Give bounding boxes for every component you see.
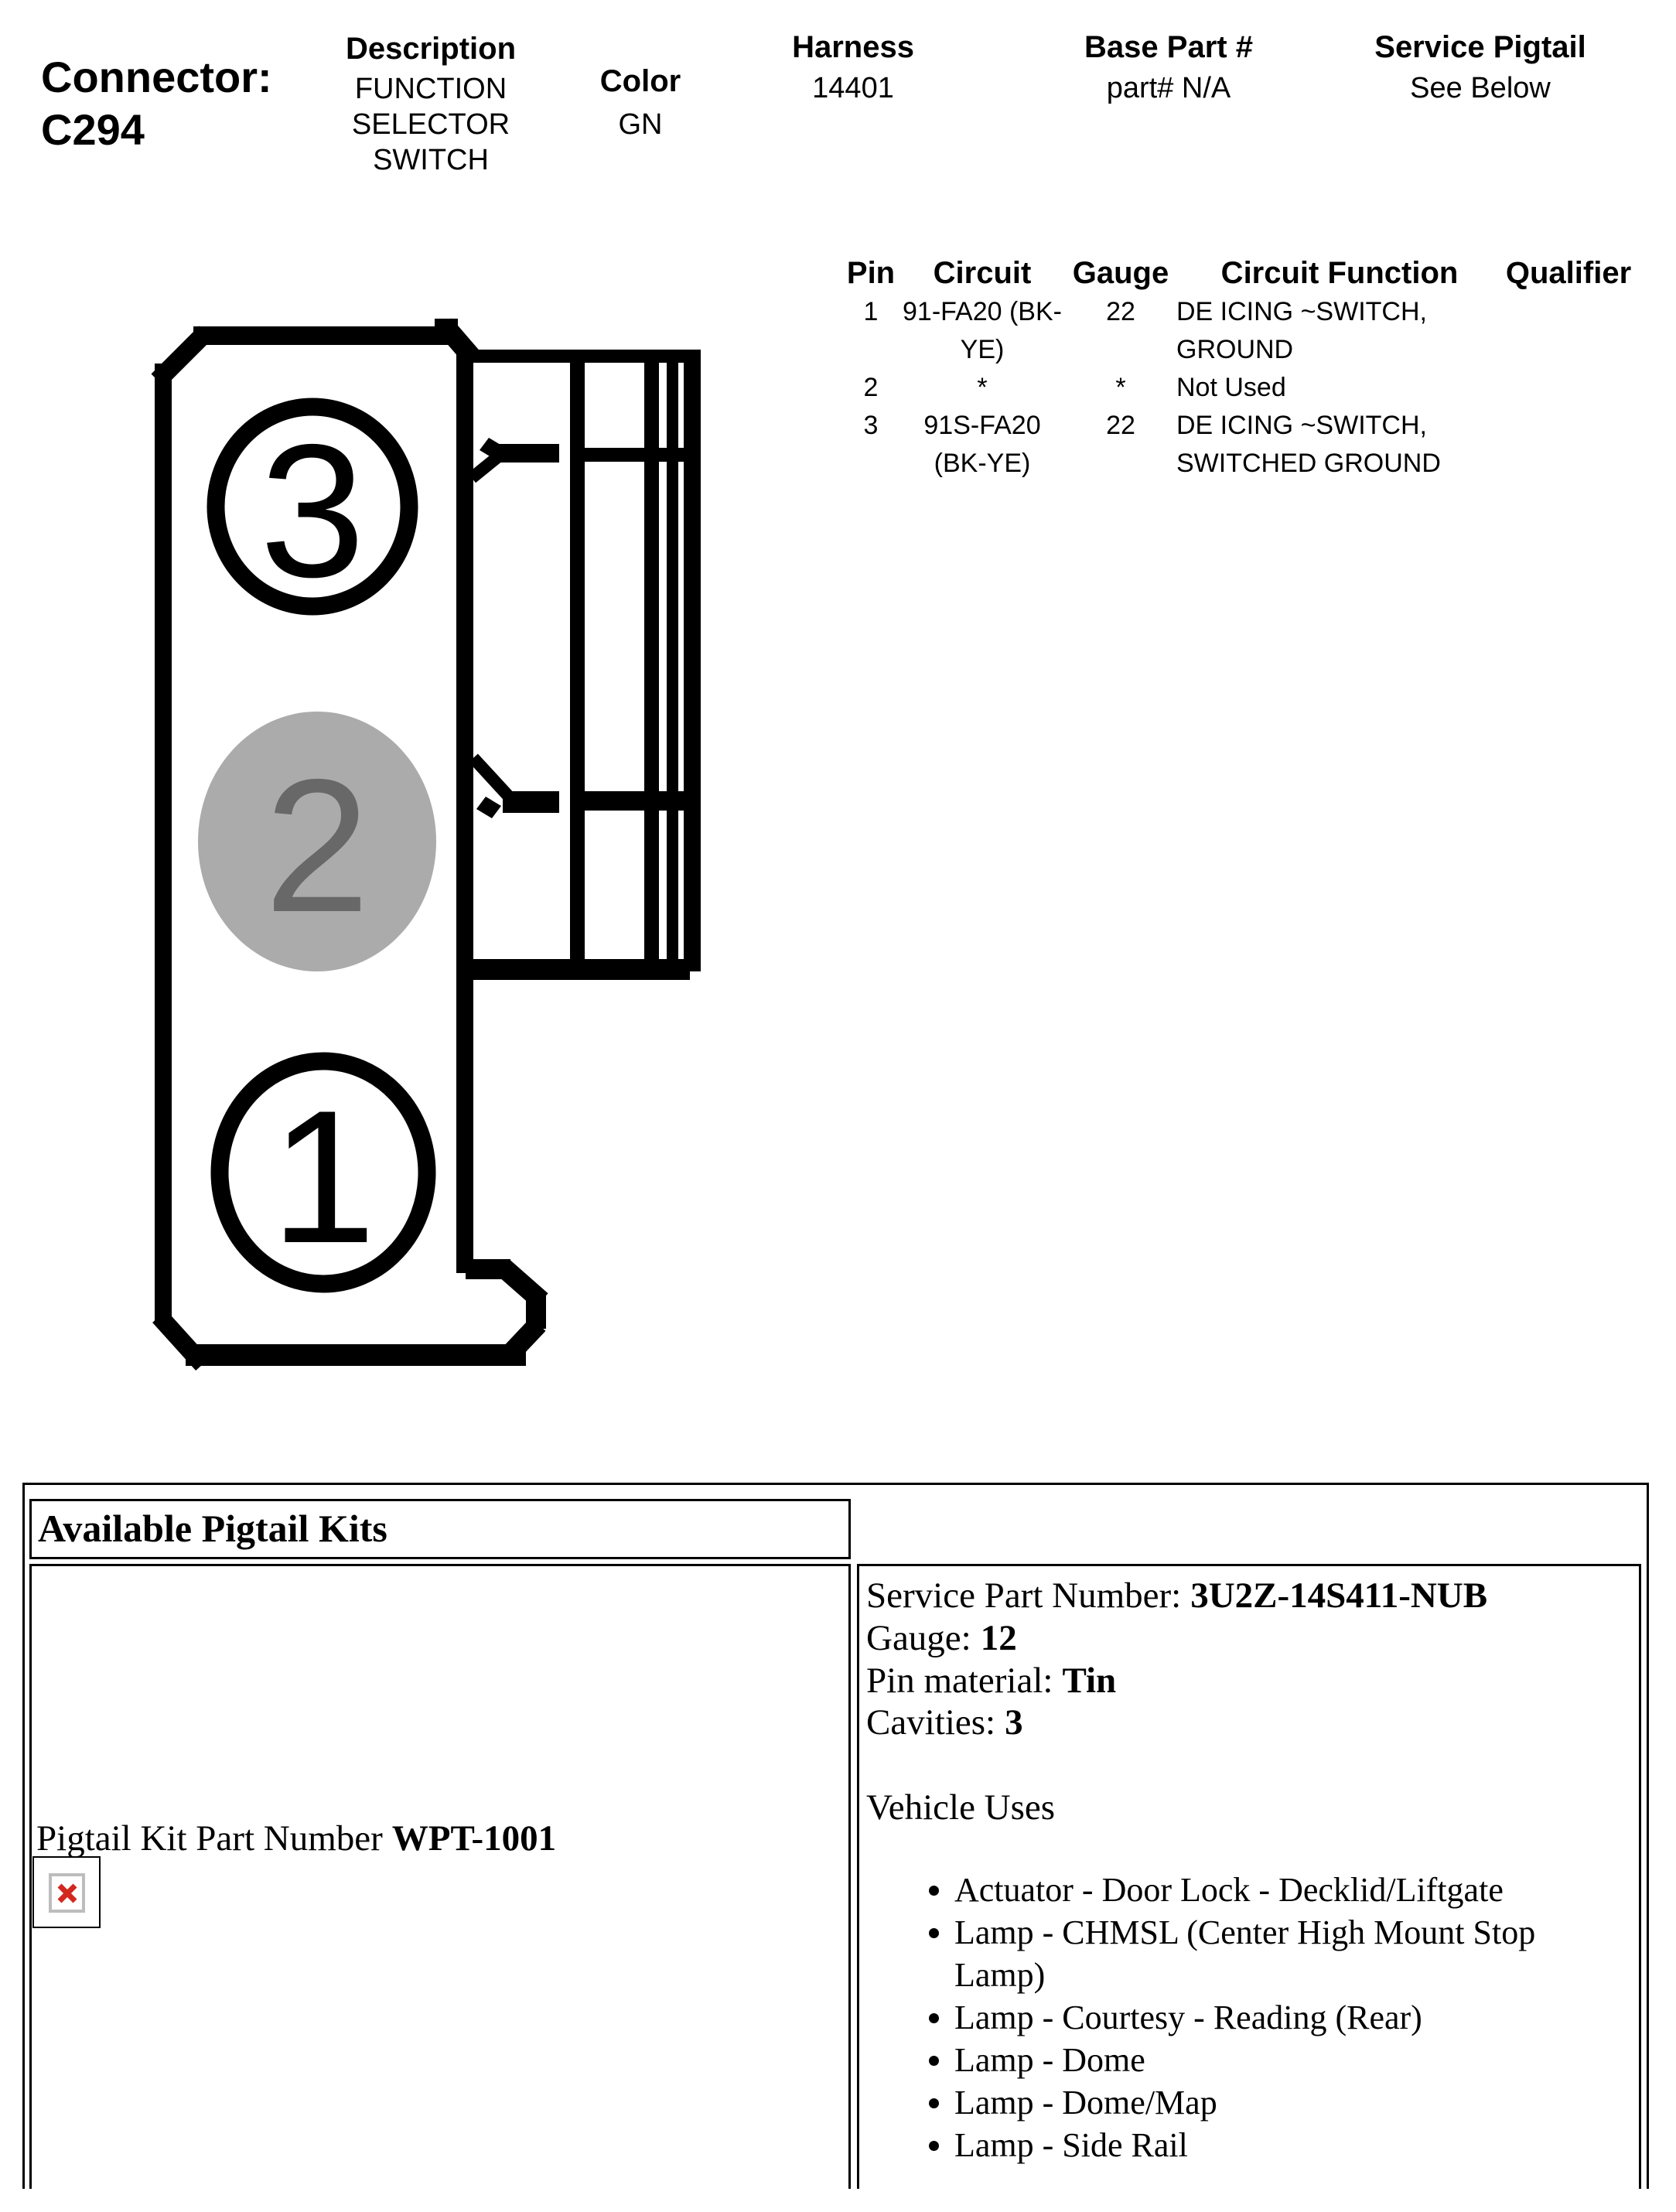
connector-bottom-hook bbox=[466, 1259, 546, 1352]
description-value-line3: SWITCH bbox=[373, 144, 489, 178]
vehicle-use-item: Lamp - Dome bbox=[954, 2039, 1573, 2081]
pigtail-kit-line: Pigtail Kit Part NumberWPT-1001 bbox=[36, 1818, 556, 1859]
pin-cell-row2-gauge: * bbox=[1115, 373, 1125, 403]
cavity-2-label: 2 bbox=[265, 739, 370, 951]
vehicle-use-item: Lamp - CHMSL (Center High Mount Stop Lam… bbox=[954, 1911, 1573, 1996]
pin-table-header-pin: Pin bbox=[847, 255, 895, 291]
cavities-value: 3 bbox=[1005, 1702, 1023, 1743]
pin-cell-row3-function-line1: DE ICING ~SWITCH, bbox=[1176, 411, 1427, 441]
pin-cell-row3-circuit-line1: 91S-FA20 bbox=[923, 411, 1040, 441]
gauge-line: Gauge:12 bbox=[866, 1617, 1017, 1659]
pin-cell-row1-gauge: 22 bbox=[1106, 297, 1135, 327]
service-pigtail-column-label: Service Pigtail bbox=[1374, 29, 1586, 65]
pin-table-header-function: Circuit Function bbox=[1221, 255, 1459, 291]
harness-value: 14401 bbox=[812, 72, 894, 106]
pigtail-kit-label: Pigtail Kit Part Number bbox=[36, 1818, 383, 1859]
pin-cell-row3-circuit-line2: (BK-YE) bbox=[934, 449, 1031, 479]
cavity-1-label: 1 bbox=[271, 1070, 376, 1282]
pin-table-header-circuit: Circuit bbox=[934, 255, 1032, 291]
pin-cell-row2-function: Not Used bbox=[1176, 373, 1286, 403]
pin-cell-row1-pin: 1 bbox=[864, 297, 879, 327]
vehicle-uses-list: Actuator - Door Lock - Decklid/Liftgate … bbox=[919, 1869, 1573, 2166]
base-part-column-label: Base Part # bbox=[1084, 29, 1253, 65]
vehicle-use-item: Lamp - Courtesy - Reading (Rear) bbox=[954, 1996, 1573, 2039]
description-value-line1: FUNCTION bbox=[355, 73, 507, 107]
service-part-line: Service Part Number:3U2Z-14S411-NUB bbox=[866, 1575, 1487, 1616]
pin-cell-row2-circuit: * bbox=[977, 373, 987, 403]
gauge-value: 12 bbox=[981, 1618, 1017, 1658]
pigtail-kits-title: Available Pigtail Kits bbox=[32, 1501, 848, 1555]
pin-material-value: Tin bbox=[1062, 1661, 1116, 1701]
pin-cell-row1-function-line1: DE ICING ~SWITCH, bbox=[1176, 297, 1427, 327]
pigtail-kit-cell bbox=[29, 1564, 851, 2189]
pin-cell-row3-gauge: 22 bbox=[1106, 411, 1135, 441]
connector-label: Connector: bbox=[41, 51, 272, 103]
pin-material-label: Pin material: bbox=[866, 1661, 1053, 1701]
gauge-label: Gauge: bbox=[866, 1618, 971, 1658]
pigtail-kit-number: WPT-1001 bbox=[392, 1818, 556, 1859]
broken-image-frame bbox=[49, 1873, 85, 1913]
connector-spec-page: { "header": { "connector_label": "Connec… bbox=[0, 0, 1676, 2212]
vehicle-uses-title: Vehicle Uses bbox=[866, 1787, 1055, 1828]
pin-cell-row3-function-line2: SWITCHED GROUND bbox=[1176, 449, 1441, 479]
pin-cell-row1-circuit-line2: YE) bbox=[961, 335, 1005, 365]
pin-cell-row2-pin: 2 bbox=[864, 373, 879, 403]
service-part-value: 3U2Z-14S411-NUB bbox=[1190, 1575, 1487, 1616]
pin-table-header-qualifier: Qualifier bbox=[1506, 255, 1631, 291]
pin-material-line: Pin material:Tin bbox=[866, 1660, 1116, 1702]
color-column-label: Color bbox=[600, 63, 681, 99]
pin-cell-row1-circuit-line1: 91-FA20 (BK- bbox=[903, 297, 1062, 327]
description-value-line2: SELECTOR bbox=[352, 108, 510, 142]
vehicle-use-item: Lamp - Side Rail bbox=[954, 2124, 1573, 2166]
harness-column-label: Harness bbox=[792, 29, 914, 65]
connector-id: C294 bbox=[41, 104, 145, 155]
cavities-line: Cavities:3 bbox=[866, 1702, 1023, 1743]
service-part-label: Service Part Number: bbox=[866, 1575, 1181, 1616]
pin-cell-row1-function-line2: GROUND bbox=[1176, 335, 1293, 365]
vehicle-use-item: Lamp - Dome/Map bbox=[954, 2081, 1573, 2124]
cavities-label: Cavities: bbox=[866, 1702, 995, 1743]
pin-cell-row3-pin: 3 bbox=[864, 411, 879, 441]
service-pigtail-value: See Below bbox=[1410, 72, 1551, 106]
broken-image-placeholder bbox=[32, 1856, 101, 1928]
vehicle-use-item: Actuator - Door Lock - Decklid/Liftgate bbox=[954, 1869, 1573, 1911]
pigtail-kits-title-cell: Available Pigtail Kits bbox=[29, 1499, 851, 1559]
cavity-3-label: 3 bbox=[260, 405, 365, 616]
broken-image-x-icon bbox=[56, 1883, 79, 1904]
pin-table-header-gauge: Gauge bbox=[1073, 255, 1169, 291]
description-column-label: Description bbox=[346, 31, 516, 67]
color-value: GN bbox=[619, 108, 663, 142]
connector-side-grid bbox=[464, 350, 701, 980]
connector-diagram: 3 2 1 bbox=[139, 309, 712, 1392]
base-part-value: part# N/A bbox=[1107, 72, 1231, 106]
